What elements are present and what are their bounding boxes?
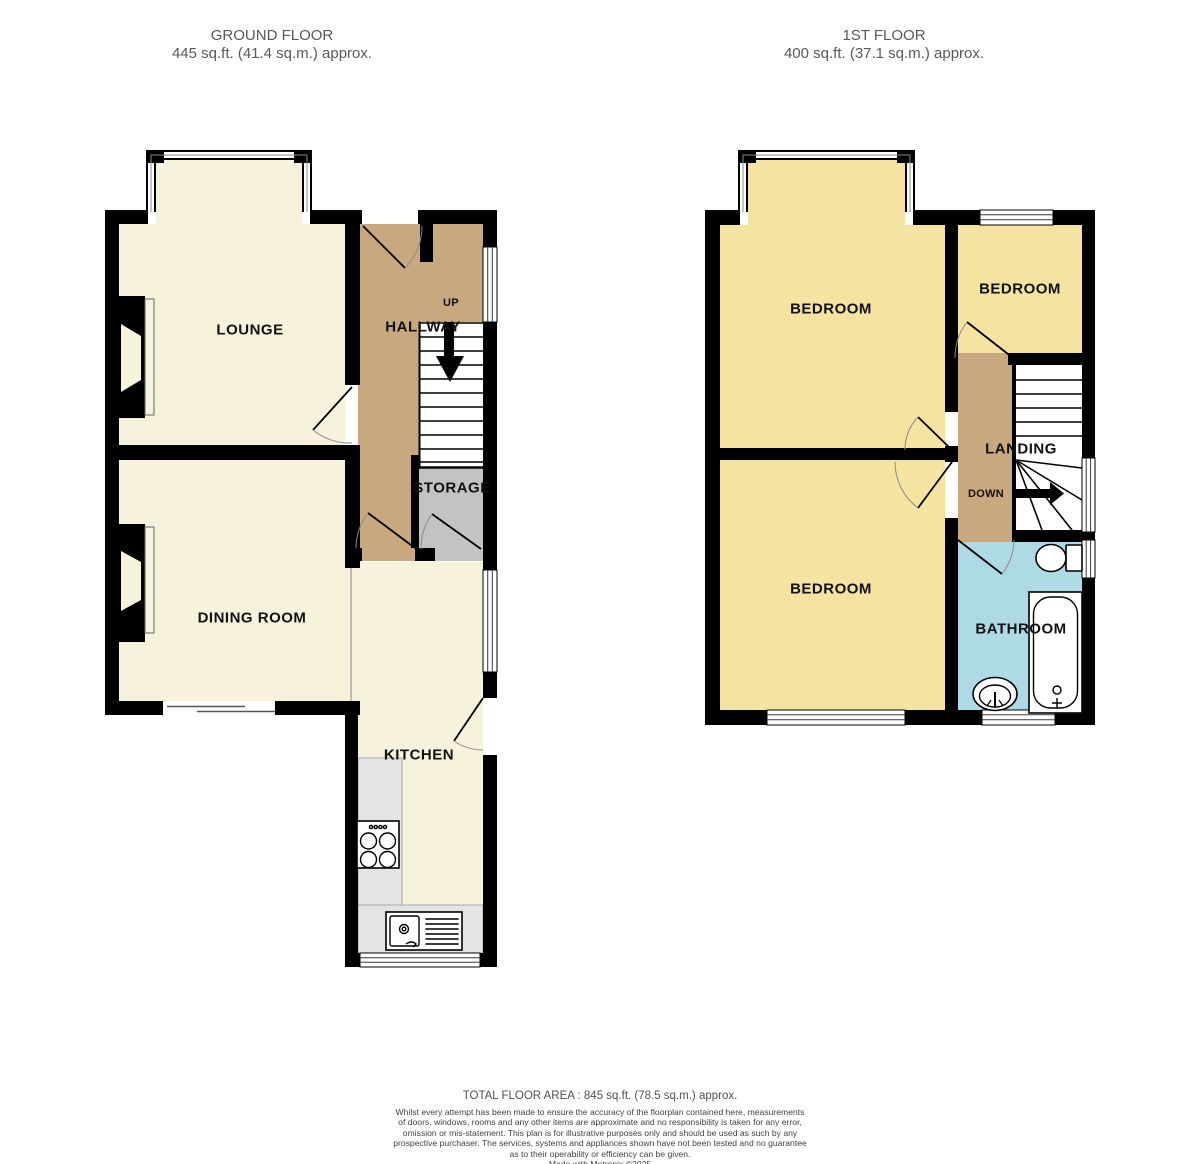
hallway-label: HALLWAY xyxy=(385,319,460,336)
ground-floor-area: 445 sq.ft. (41.4 sq.m.) approx. xyxy=(172,45,372,63)
first-floor-area: 400 sq.ft. (37.1 sq.m.) approx. xyxy=(784,45,984,63)
landing-label: LANDING xyxy=(985,441,1057,458)
bathroom-label: BATHROOM xyxy=(975,621,1066,638)
total-floor-area: TOTAL FLOOR AREA : 845 sq.ft. (78.5 sq.m… xyxy=(0,1090,1200,1102)
bedroom2-label: BEDROOM xyxy=(979,281,1061,298)
bedroom3-label: BEDROOM xyxy=(790,581,872,598)
disclaimer-line: of doors, windows, rooms and any other i… xyxy=(0,1117,1200,1127)
footer: TOTAL FLOOR AREA : 845 sq.ft. (78.5 sq.m… xyxy=(0,1090,1200,1164)
up-label: UP xyxy=(443,297,459,309)
kitchen-label: KITCHEN xyxy=(384,747,454,764)
label-layer: GROUND FLOOR 445 sq.ft. (41.4 sq.m.) app… xyxy=(0,0,1200,1164)
metropix-credit: Made with Metropix ©2025 xyxy=(0,1159,1200,1164)
ground-floor-title: GROUND FLOOR xyxy=(172,27,372,45)
storage-label: STORAGE xyxy=(413,480,490,497)
first-floor-header: 1ST FLOOR 400 sq.ft. (37.1 sq.m.) approx… xyxy=(784,27,984,63)
disclaimer-line: as to their operability or efficiency ca… xyxy=(0,1149,1200,1159)
ground-floor-header: GROUND FLOOR 445 sq.ft. (41.4 sq.m.) app… xyxy=(172,27,372,63)
first-floor-title: 1ST FLOOR xyxy=(784,27,984,45)
down-label: DOWN xyxy=(968,488,1004,500)
disclaimer-line: Whilst every attempt has been made to en… xyxy=(0,1107,1200,1117)
disclaimer-line: prospective purchaser. The services, sys… xyxy=(0,1138,1200,1148)
lounge-label: LOUNGE xyxy=(216,322,283,339)
disclaimer-line: omission or mis-statement. This plan is … xyxy=(0,1128,1200,1138)
dining-room-label: DINING ROOM xyxy=(198,610,307,627)
bedroom1-label: BEDROOM xyxy=(790,301,872,318)
floorplan-canvas: GROUND FLOOR 445 sq.ft. (41.4 sq.m.) app… xyxy=(0,0,1200,1164)
